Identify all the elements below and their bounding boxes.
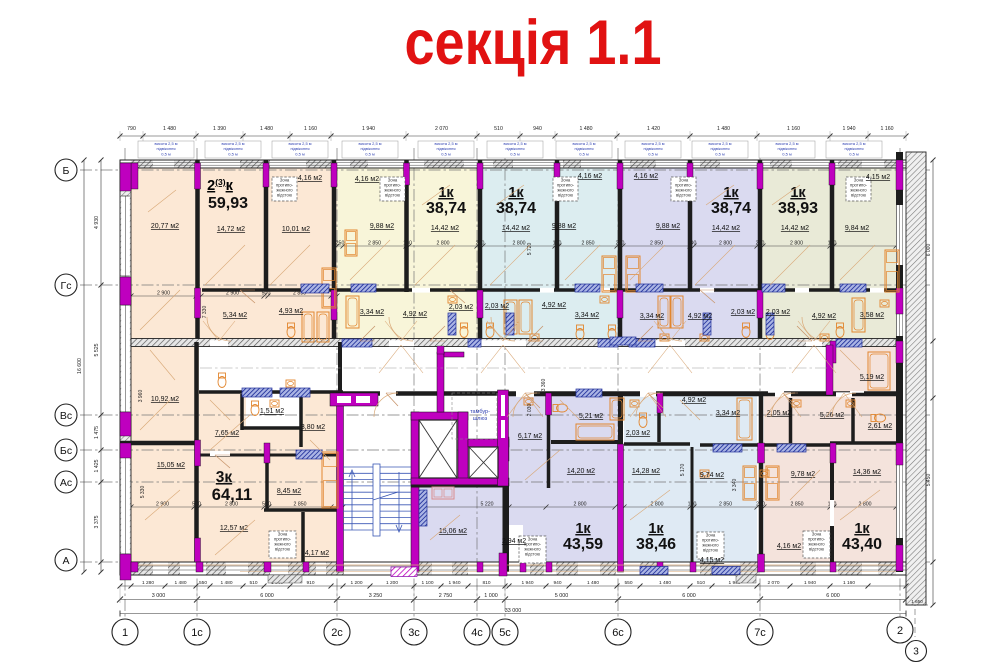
svg-text:відстою: відстою [676, 192, 691, 197]
svg-text:43,40: 43,40 [842, 536, 882, 553]
svg-text:1 940: 1 940 [448, 580, 460, 586]
svg-text:2 800: 2 800 [574, 502, 587, 508]
svg-text:5,21 м2: 5,21 м2 [579, 413, 603, 420]
svg-text:5 720: 5 720 [527, 243, 533, 256]
svg-text:3,34 м2: 3,34 м2 [640, 313, 664, 320]
svg-text:38,74: 38,74 [426, 200, 466, 217]
svg-text:2,03 м2: 2,03 м2 [731, 309, 755, 316]
svg-text:38,74: 38,74 [496, 200, 536, 217]
svg-text:1 200: 1 200 [350, 580, 362, 586]
svg-text:0,5 м: 0,5 м [648, 151, 658, 156]
svg-text:14,42 м2: 14,42 м2 [431, 225, 459, 232]
svg-text:відстою: відстою [851, 192, 866, 197]
svg-text:14,28 м2: 14,28 м2 [632, 468, 660, 475]
svg-text:2 850: 2 850 [294, 502, 307, 508]
svg-text:відстою: відстою [275, 546, 290, 551]
svg-text:38,74: 38,74 [711, 200, 751, 217]
svg-text:2 850: 2 850 [368, 241, 381, 247]
svg-text:6 000: 6 000 [926, 244, 932, 257]
svg-text:6 000: 6 000 [826, 593, 840, 599]
svg-text:1 280: 1 280 [142, 580, 154, 586]
svg-text:1 420: 1 420 [647, 126, 660, 132]
svg-text:4,92 м2: 4,92 м2 [403, 311, 427, 318]
svg-text:відстою: відстою [277, 192, 292, 197]
svg-text:2 800: 2 800 [513, 241, 526, 247]
svg-text:Вс: Вс [60, 410, 72, 422]
svg-text:1 425: 1 425 [94, 459, 100, 472]
svg-text:9,74 м2: 9,74 м2 [700, 472, 724, 479]
svg-text:1 480: 1 480 [717, 126, 730, 132]
svg-text:3,34 м2: 3,34 м2 [716, 410, 740, 417]
svg-text:0,5 м: 0,5 м [579, 151, 589, 156]
svg-text:3к: 3к [216, 469, 233, 486]
svg-text:1к: 1к [723, 185, 739, 201]
svg-text:3 360: 3 360 [541, 379, 547, 392]
svg-text:9,88 м2: 9,88 м2 [552, 223, 576, 230]
svg-text:9,88 м2: 9,88 м2 [656, 223, 680, 230]
svg-text:7 330: 7 330 [202, 306, 208, 319]
svg-text:2 070: 2 070 [435, 126, 448, 132]
svg-text:5,19 м2: 5,19 м2 [860, 374, 884, 381]
svg-text:8,45 м2: 8,45 м2 [277, 488, 301, 495]
svg-text:12,57 м2: 12,57 м2 [220, 525, 248, 532]
svg-text:4,92 м2: 4,92 м2 [682, 397, 706, 404]
svg-text:16 600: 16 600 [77, 358, 83, 374]
svg-text:14,42 м2: 14,42 м2 [712, 225, 740, 232]
svg-text:10,92 м2: 10,92 м2 [151, 396, 179, 403]
svg-text:3,34 м2: 3,34 м2 [575, 312, 599, 319]
svg-text:3 000: 3 000 [152, 593, 166, 599]
svg-text:4,17 м2: 4,17 м2 [305, 550, 329, 557]
svg-text:2,05 м2: 2,05 м2 [767, 410, 791, 417]
svg-text:3,34 м2: 3,34 м2 [360, 309, 384, 316]
svg-text:0,5 м: 0,5 м [849, 151, 859, 156]
svg-text:2 900: 2 900 [157, 291, 170, 297]
svg-text:5 220: 5 220 [481, 502, 494, 508]
svg-text:14,42 м2: 14,42 м2 [502, 225, 530, 232]
svg-text:3с: 3с [408, 627, 420, 639]
svg-text:1 480: 1 480 [163, 126, 176, 132]
svg-text:2 850: 2 850 [582, 241, 595, 247]
svg-text:6с: 6с [612, 627, 624, 639]
svg-text:5 525: 5 525 [94, 343, 100, 356]
svg-text:1 480: 1 480 [587, 580, 599, 586]
svg-text:4,92 м2: 4,92 м2 [542, 302, 566, 309]
svg-text:1,51 м2: 1,51 м2 [260, 408, 284, 415]
svg-text:9,78 м2: 9,78 м2 [791, 471, 815, 478]
svg-text:250: 250 [336, 241, 345, 247]
svg-text:510: 510 [249, 580, 257, 586]
svg-text:Гс: Гс [61, 280, 72, 292]
svg-text:1 480: 1 480 [220, 580, 232, 586]
svg-text:9,88 м2: 9,88 м2 [370, 223, 394, 230]
svg-text:1к: 1к [575, 521, 591, 537]
svg-text:2 850: 2 850 [791, 502, 804, 508]
svg-text:1 480: 1 480 [659, 580, 671, 586]
svg-text:1 940: 1 940 [804, 580, 816, 586]
svg-text:1 480: 1 480 [174, 580, 186, 586]
svg-text:7,65 м2: 7,65 м2 [215, 430, 239, 437]
svg-text:5 330: 5 330 [140, 486, 146, 499]
svg-text:секція 1.1: секція 1.1 [405, 8, 662, 78]
svg-text:7с: 7с [754, 627, 766, 639]
svg-text:10,01 м2: 10,01 м2 [282, 226, 310, 233]
svg-text:Ас: Ас [60, 477, 72, 489]
svg-text:4,16 м2: 4,16 м2 [777, 543, 801, 550]
svg-text:6 000: 6 000 [682, 593, 696, 599]
svg-text:4,93 м2: 4,93 м2 [279, 308, 303, 315]
svg-text:1 160: 1 160 [787, 126, 800, 132]
svg-text:4,92 м2: 4,92 м2 [688, 313, 712, 320]
svg-text:2 800: 2 800 [719, 241, 732, 247]
svg-text:940: 940 [533, 126, 542, 132]
svg-text:0,5 м: 0,5 м [510, 151, 520, 156]
svg-text:3 375: 3 375 [94, 515, 100, 528]
svg-text:5,34 м2: 5,34 м2 [223, 312, 247, 319]
svg-text:1 480: 1 480 [580, 126, 593, 132]
svg-text:відстою: відстою [703, 547, 718, 552]
svg-text:1 100: 1 100 [421, 580, 433, 586]
svg-text:14,20 м2: 14,20 м2 [567, 468, 595, 475]
svg-text:1к: 1к [648, 521, 664, 537]
svg-text:1 160: 1 160 [304, 126, 317, 132]
svg-text:59,93: 59,93 [208, 195, 248, 212]
svg-text:14,36 м2: 14,36 м2 [853, 469, 881, 476]
svg-text:відстою: відстою [809, 546, 824, 551]
svg-text:Бс: Бс [60, 445, 72, 457]
svg-text:940: 940 [553, 580, 561, 586]
svg-text:20,77 м2: 20,77 м2 [151, 223, 179, 230]
svg-text:4с: 4с [471, 627, 483, 639]
svg-text:33 000: 33 000 [505, 608, 522, 614]
svg-text:2 900: 2 900 [156, 502, 169, 508]
svg-text:2 850: 2 850 [719, 502, 732, 508]
svg-text:2с: 2с [331, 627, 343, 639]
svg-text:790: 790 [127, 126, 136, 132]
svg-text:1к: 1к [854, 521, 870, 537]
svg-text:відстою: відстою [385, 192, 400, 197]
svg-text:38,93: 38,93 [778, 200, 818, 217]
svg-text:4,92 м2: 4,92 м2 [812, 313, 836, 320]
svg-text:2 070: 2 070 [767, 580, 779, 586]
svg-text:1 940: 1 940 [521, 580, 533, 586]
svg-text:14,72 м2: 14,72 м2 [217, 226, 245, 233]
svg-text:1 200: 1 200 [386, 580, 398, 586]
svg-text:2 800: 2 800 [651, 502, 664, 508]
svg-text:відстою: відстою [525, 551, 540, 556]
svg-text:4,16 м2: 4,16 м2 [355, 176, 379, 183]
svg-text:1 940: 1 940 [843, 126, 856, 132]
svg-text:4,15 м2: 4,15 м2 [700, 557, 724, 564]
svg-text:0,5 м: 0,5 м [441, 151, 451, 156]
svg-text:15,05 м2: 15,05 м2 [157, 462, 185, 469]
svg-text:550: 550 [199, 580, 207, 586]
svg-text:5 170: 5 170 [680, 464, 686, 477]
svg-text:1: 1 [122, 627, 128, 639]
svg-text:4,16 м2: 4,16 м2 [298, 175, 322, 182]
svg-text:6,17 м2: 6,17 м2 [518, 433, 542, 440]
svg-text:510: 510 [697, 580, 705, 586]
svg-text:5 450: 5 450 [926, 474, 932, 487]
svg-text:1 160: 1 160 [843, 580, 855, 586]
svg-text:9,84 м2: 9,84 м2 [845, 225, 869, 232]
svg-text:0,5 м: 0,5 м [365, 151, 375, 156]
svg-text:3 340: 3 340 [732, 479, 738, 492]
svg-text:2,03 м2: 2,03 м2 [626, 430, 650, 437]
svg-text:0,5 м: 0,5 м [228, 151, 238, 156]
svg-text:шлюз: шлюз [473, 416, 488, 422]
svg-text:1 940: 1 940 [362, 126, 375, 132]
svg-text:3 250: 3 250 [369, 593, 383, 599]
svg-text:3 960: 3 960 [138, 390, 144, 403]
svg-text:5 000: 5 000 [555, 593, 569, 599]
svg-text:2,03 м2: 2,03 м2 [766, 309, 790, 316]
svg-text:2,61 м2: 2,61 м2 [868, 423, 892, 430]
svg-text:2 800: 2 800 [790, 241, 803, 247]
svg-text:1 000: 1 000 [484, 593, 498, 599]
svg-text:2: 2 [897, 625, 903, 637]
svg-text:1 160: 1 160 [881, 126, 894, 132]
svg-text:4,16 м2: 4,16 м2 [578, 173, 602, 180]
svg-text:510: 510 [494, 126, 503, 132]
svg-text:0,5 м: 0,5 м [715, 151, 725, 156]
svg-text:1к: 1к [508, 185, 524, 201]
svg-text:2,03 м2: 2,03 м2 [485, 303, 509, 310]
svg-text:2 030: 2 030 [527, 404, 533, 417]
svg-text:0,5 м: 0,5 м [782, 151, 792, 156]
svg-text:відстою: відстою [558, 192, 573, 197]
svg-text:43,59: 43,59 [563, 536, 603, 553]
svg-text:2,03 м2: 2,03 м2 [449, 304, 473, 311]
svg-text:6 000: 6 000 [260, 593, 274, 599]
svg-text:0,5 м: 0,5 м [295, 151, 305, 156]
svg-text:2,94 м2: 2,94 м2 [502, 538, 526, 545]
svg-text:А: А [62, 555, 69, 567]
svg-text:64,11: 64,11 [212, 486, 252, 504]
svg-text:2 800: 2 800 [437, 241, 450, 247]
svg-text:550: 550 [624, 580, 632, 586]
svg-text:2 850: 2 850 [650, 241, 663, 247]
svg-text:1 480: 1 480 [260, 126, 273, 132]
svg-text:1 475: 1 475 [94, 426, 100, 439]
svg-text:тамбур-: тамбур- [470, 409, 490, 415]
svg-text:2 750: 2 750 [439, 593, 453, 599]
svg-text:810: 810 [482, 580, 490, 586]
svg-text:4 930: 4 930 [94, 216, 100, 229]
svg-text:1 390: 1 390 [213, 126, 226, 132]
svg-text:14,42 м2: 14,42 м2 [781, 225, 809, 232]
svg-text:3,58 м2: 3,58 м2 [860, 312, 884, 319]
svg-text:5с: 5с [499, 627, 511, 639]
svg-text:910: 910 [306, 580, 314, 586]
svg-text:1 650: 1 650 [911, 599, 923, 604]
svg-text:4,15 м2: 4,15 м2 [866, 174, 890, 181]
svg-text:1с: 1с [191, 627, 203, 639]
svg-text:3: 3 [913, 647, 919, 658]
svg-text:Б: Б [63, 165, 70, 177]
svg-text:1к: 1к [790, 185, 806, 201]
svg-text:0,5 м: 0,5 м [161, 151, 171, 156]
svg-text:3,80 м2: 3,80 м2 [301, 424, 325, 431]
svg-text:38,46: 38,46 [636, 536, 676, 553]
svg-text:4,16 м2: 4,16 м2 [634, 173, 658, 180]
